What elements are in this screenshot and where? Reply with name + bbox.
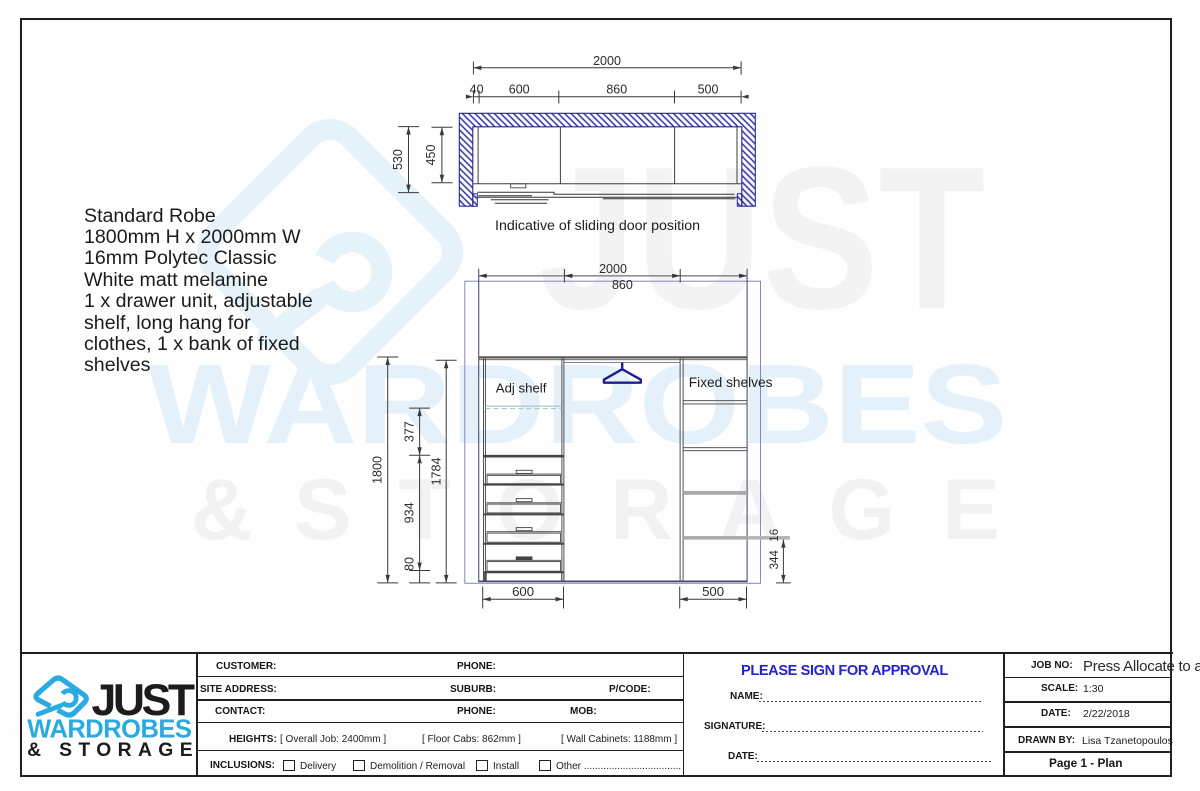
- svg-text:& STORAGE: & STORAGE: [27, 740, 196, 761]
